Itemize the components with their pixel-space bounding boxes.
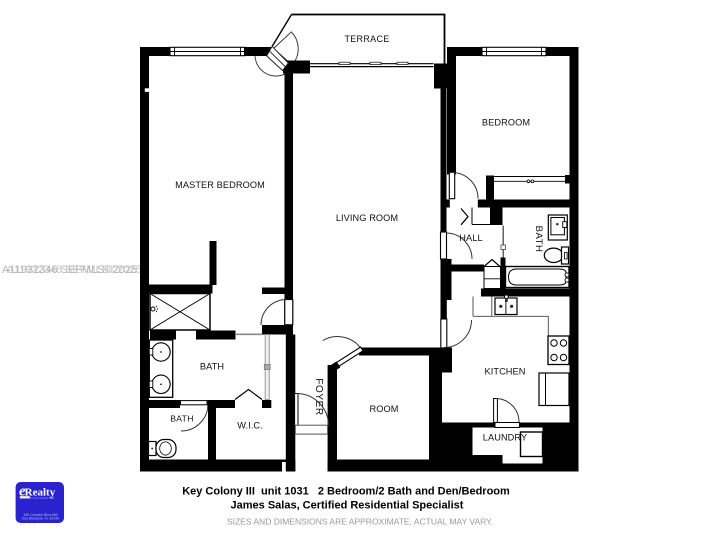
- svg-text:BEDROOM: BEDROOM: [482, 118, 530, 128]
- svg-text:KITCHEN: KITCHEN: [484, 367, 525, 377]
- svg-text:BATH: BATH: [200, 362, 224, 372]
- svg-text:SIZES AND DIMENSIONS ARE APPRO: SIZES AND DIMENSIONS ARE APPROXIMATE, AC…: [227, 517, 493, 527]
- svg-text:FOYER: FOYER: [313, 378, 324, 415]
- svg-text:International: International: [30, 496, 54, 500]
- svg-text:LAUNDRY: LAUNDRY: [483, 433, 527, 443]
- svg-text:BATH: BATH: [170, 414, 193, 424]
- svg-text:Key Colony III unit 1031 2: Key Colony III unit 1031 2 Bedroom/2 Bat…: [182, 486, 510, 498]
- svg-text:MASTER BEDROOM: MASTER BEDROOM: [175, 180, 265, 190]
- svg-text:ROOM: ROOM: [370, 404, 399, 414]
- svg-text:BATH: BATH: [533, 226, 544, 253]
- svg-text:TERRACE: TERRACE: [344, 34, 389, 44]
- svg-text:LIVING ROOM: LIVING ROOM: [336, 213, 398, 223]
- svg-text:Key Biscayne, FL 33149: Key Biscayne, FL 33149: [22, 517, 59, 521]
- svg-text:W.I.C.: W.I.C.: [237, 421, 263, 431]
- svg-text:HALL: HALL: [459, 233, 482, 243]
- svg-text:James Salas, Certified Residen: James Salas, Certified Residential Speci…: [231, 500, 464, 512]
- svg-text:A11932346 SEFMLS©2025: A11932346 SEFMLS©2025: [7, 264, 142, 276]
